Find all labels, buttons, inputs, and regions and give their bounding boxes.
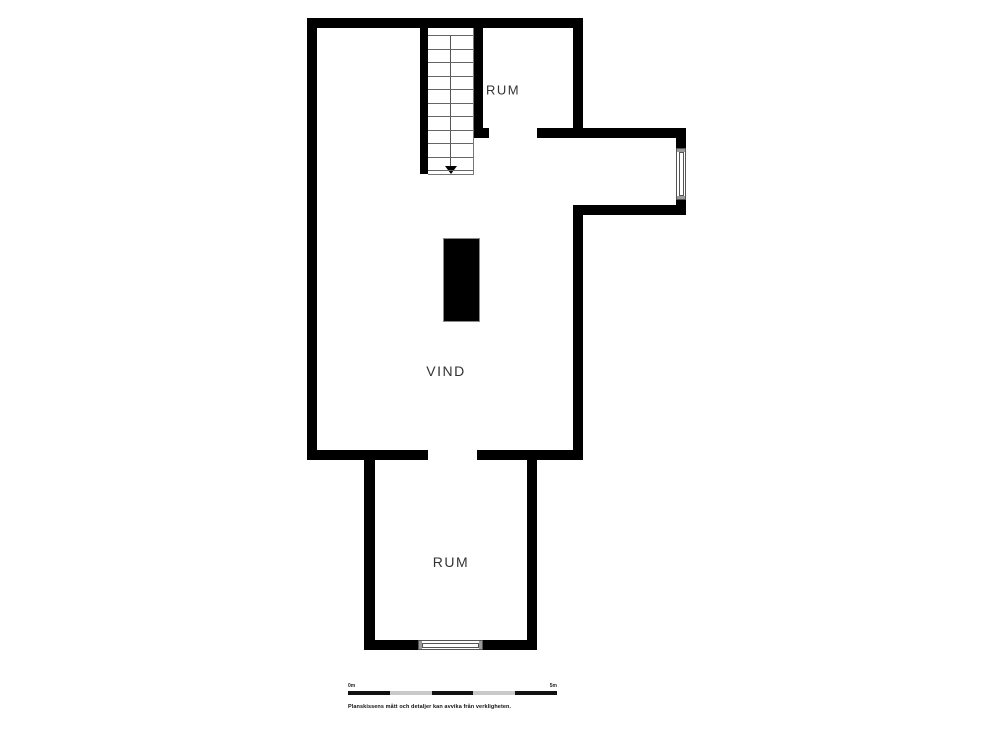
wall-room-bottom-right [527,460,537,650]
disclaimer-text: Planskissens mått och detaljer kan avvik… [348,704,511,710]
stair-tread [428,170,473,171]
wall-room-bottom-bottom-left [364,640,418,650]
stair-tread [428,116,473,117]
wall-room-top-door-jamb [473,128,489,138]
wall-right-lower [573,215,583,460]
wall-extension-bottom [573,205,686,215]
wall-attic-bottom-right [477,450,583,460]
scale-bar: 0m 5m [348,683,557,699]
wall-extension-right-upper [676,128,686,148]
wall-room-bottom-bottom-right [483,640,537,650]
scale-bar-track [348,691,557,695]
stair-tread [428,62,473,63]
window-pane [422,643,479,648]
wall-stair-right [473,28,483,128]
stair-tread [428,103,473,104]
window-frame-cap [479,641,482,649]
stair-tread [428,143,473,144]
staircase [428,28,474,175]
scale-bar-segment [348,691,390,695]
stair-tread [428,76,473,77]
wall-right-upper [573,18,583,128]
wall-attic-bottom-left [307,450,428,460]
stair-tread [428,130,473,131]
scale-start-label: 0m [348,683,355,689]
window-pane [679,152,684,196]
stair-tread [428,89,473,90]
room-label-bottom: RUM [433,554,469,570]
wall-left [307,18,317,460]
window-icon [676,148,686,200]
room-label-attic: VIND [426,363,465,379]
scale-bar-segment [432,691,474,695]
stair-tread [428,35,473,36]
stair-tread [428,49,473,50]
room-label-top: RUM [486,83,520,98]
floor-plan: RUM VIND RUM 0m 5m Planskissens mått och… [0,0,992,744]
wall-top [307,18,583,28]
wall-room-top-bottom-and-extension-top [537,128,686,138]
stair-tread [428,157,473,158]
stair-center-line [450,35,451,166]
chimney [443,238,480,322]
scale-bar-segment [515,691,557,695]
wall-stair-left [420,28,428,174]
window-icon [418,640,483,650]
window-frame-cap [677,196,685,199]
scale-end-label: 5m [550,683,557,689]
wall-room-bottom-left [364,460,375,650]
